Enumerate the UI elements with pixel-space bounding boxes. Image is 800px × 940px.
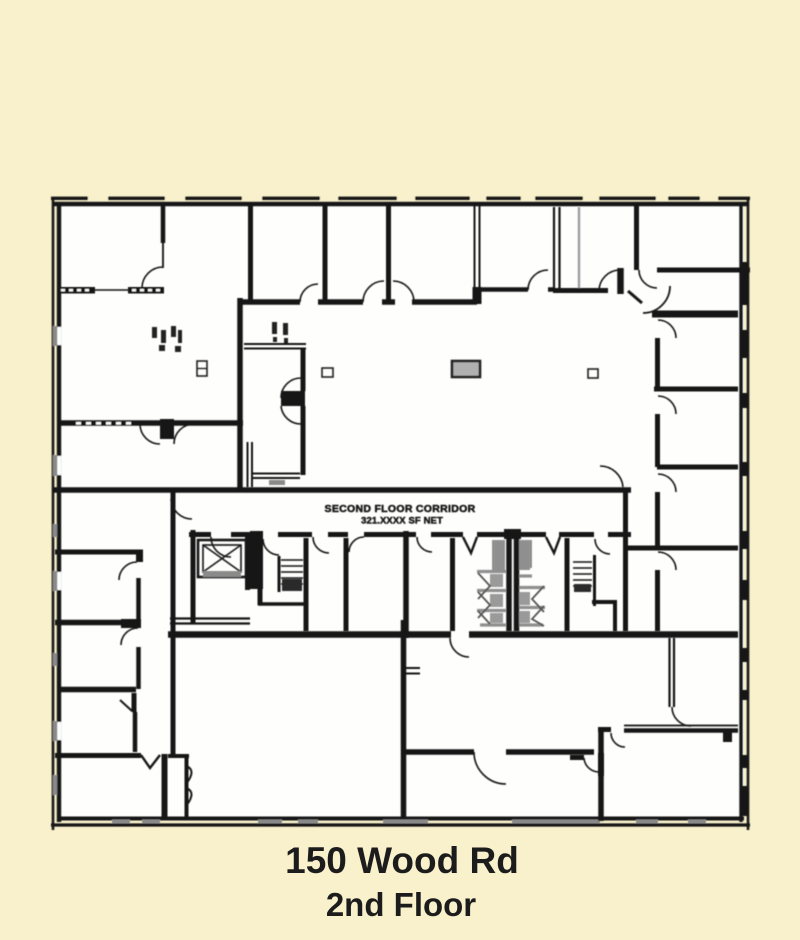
svg-text:SECOND FLOOR CORRIDOR: SECOND FLOOR CORRIDOR bbox=[325, 503, 476, 515]
svg-text:2nd Floor: 2nd Floor bbox=[326, 886, 476, 923]
svg-text:321.XXXX SF NET: 321.XXXX SF NET bbox=[361, 516, 443, 527]
svg-text:150 Wood Rd: 150 Wood Rd bbox=[285, 840, 519, 881]
